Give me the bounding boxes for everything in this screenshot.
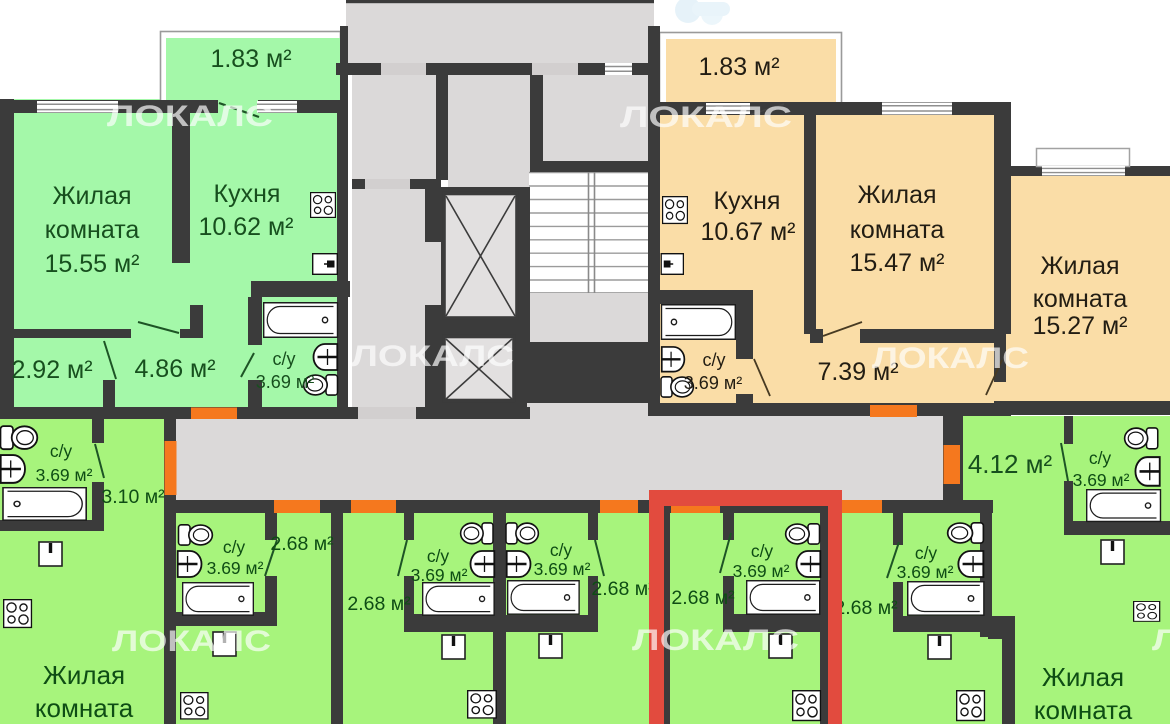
- svg-text:4.86 м²: 4.86 м²: [134, 355, 215, 383]
- svg-text:комната: комната: [1034, 695, 1133, 724]
- svg-text:10.67 м²: 10.67 м²: [700, 218, 795, 246]
- svg-text:1.83 м²: 1.83 м²: [698, 53, 779, 81]
- svg-text:3.69 м²: 3.69 м²: [534, 559, 591, 579]
- svg-text:3.69 м²: 3.69 м²: [897, 562, 954, 582]
- svg-text:ЛОКАЛС: ЛОКАЛС: [112, 625, 271, 658]
- svg-text:3.69 м²: 3.69 м²: [36, 465, 93, 485]
- svg-text:комната: комната: [45, 216, 140, 244]
- svg-text:комната: комната: [850, 216, 945, 244]
- svg-text:с/у: с/у: [915, 543, 938, 563]
- svg-text:2.68 м²: 2.68 м²: [834, 597, 898, 619]
- svg-text:3.10 м²: 3.10 м²: [101, 486, 165, 508]
- svg-text:3.69 м²: 3.69 м²: [684, 373, 742, 393]
- svg-text:с/у: с/у: [50, 441, 73, 461]
- svg-text:3.69 м²: 3.69 м²: [733, 561, 790, 581]
- svg-text:2.92 м²: 2.92 м²: [11, 356, 92, 384]
- svg-text:3.69 м²: 3.69 м²: [256, 372, 314, 392]
- svg-text:ЛОКАЛС: ЛОКАЛС: [1152, 624, 1170, 657]
- svg-text:с/у: с/у: [1089, 448, 1112, 468]
- svg-text:3.69 м²: 3.69 м²: [207, 558, 264, 578]
- svg-text:ЛОКАЛС: ЛОКАЛС: [351, 340, 514, 373]
- svg-text:1.83 м²: 1.83 м²: [210, 45, 291, 73]
- svg-text:с/у: с/у: [223, 537, 246, 557]
- svg-text:2.68 м²: 2.68 м²: [347, 593, 411, 615]
- svg-text:Жилая: Жилая: [1040, 252, 1119, 280]
- svg-text:с/у: с/у: [751, 541, 774, 561]
- svg-text:2.68 м²: 2.68 м²: [270, 533, 334, 555]
- svg-text:15.47 м²: 15.47 м²: [849, 249, 944, 277]
- svg-text:с/у: с/у: [427, 546, 450, 566]
- svg-text:15.27 м²: 15.27 м²: [1032, 312, 1127, 340]
- svg-text:комната: комната: [35, 693, 134, 723]
- svg-text:ЛОКАЛС: ЛОКАЛС: [872, 342, 1029, 375]
- svg-text:ЛОКАЛС: ЛОКАЛС: [620, 101, 792, 134]
- svg-text:Жилая: Жилая: [43, 660, 125, 690]
- svg-text:ЛОКАЛС: ЛОКАЛС: [107, 100, 273, 133]
- svg-text:Кухня: Кухня: [714, 187, 781, 215]
- svg-text:2.68 м²: 2.68 м²: [591, 578, 655, 600]
- svg-text:3.69 м²: 3.69 м²: [411, 565, 468, 585]
- svg-text:4.12 м²: 4.12 м²: [968, 449, 1053, 479]
- svg-text:с/у: с/у: [272, 349, 295, 369]
- svg-text:Жилая: Жилая: [857, 181, 936, 209]
- svg-text:10.62 м²: 10.62 м²: [198, 213, 293, 241]
- svg-text:Кухня: Кухня: [214, 180, 281, 208]
- svg-text:15.55 м²: 15.55 м²: [44, 250, 139, 278]
- svg-text:Жилая: Жилая: [1042, 662, 1124, 692]
- svg-text:3.69 м²: 3.69 м²: [1073, 470, 1130, 490]
- svg-text:комната: комната: [1033, 285, 1128, 313]
- svg-text:ЛОКАЛС: ЛОКАЛС: [632, 624, 799, 657]
- svg-text:с/у: с/у: [702, 350, 725, 370]
- svg-text:2.68 м²: 2.68 м²: [671, 587, 735, 609]
- svg-text:с/у: с/у: [550, 540, 573, 560]
- svg-text:Жилая: Жилая: [52, 182, 131, 210]
